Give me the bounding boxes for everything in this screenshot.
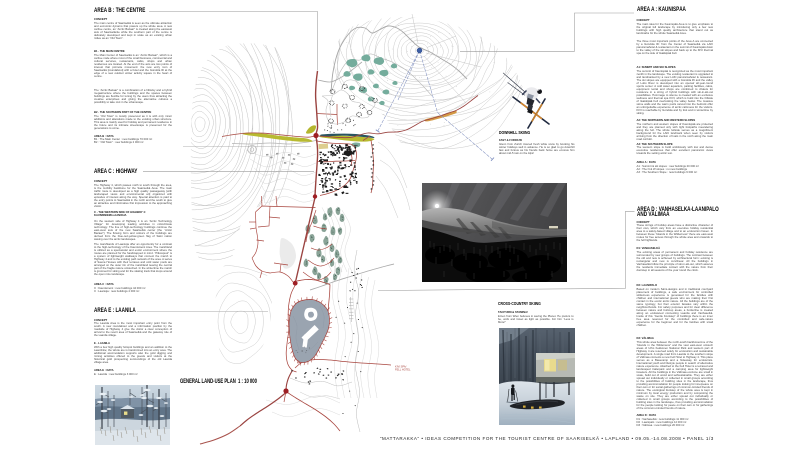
svg-text:FELL HOTEL: FELL HOTEL (395, 368, 411, 372)
